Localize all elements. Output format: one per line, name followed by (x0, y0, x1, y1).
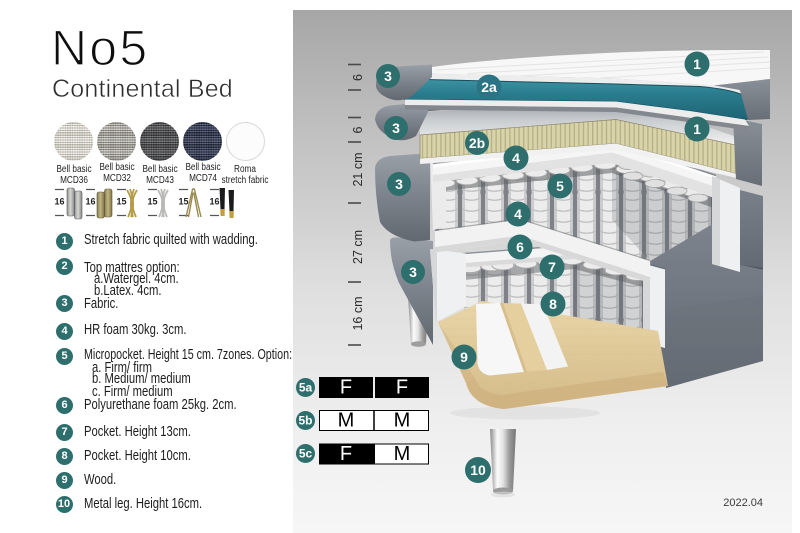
svg-text:5a: 5a (299, 381, 313, 395)
svg-text:16: 16 (54, 197, 64, 207)
svg-text:F: F (396, 377, 408, 399)
svg-text:2022.04: 2022.04 (723, 497, 763, 509)
svg-text:15: 15 (147, 197, 157, 207)
svg-text:3: 3 (409, 264, 417, 280)
svg-text:5b: 5b (298, 414, 312, 428)
svg-text:3: 3 (384, 68, 392, 84)
svg-text:2b: 2b (469, 135, 485, 151)
svg-text:6: 6 (351, 74, 365, 81)
svg-text:6: 6 (351, 126, 365, 133)
svg-text:M: M (394, 443, 411, 465)
svg-text:M: M (338, 410, 355, 432)
svg-text:10: 10 (470, 462, 486, 478)
svg-text:16: 16 (85, 197, 95, 207)
svg-text:21 cm: 21 cm (351, 152, 365, 186)
svg-text:F: F (340, 443, 352, 465)
svg-text:16 cm: 16 cm (351, 296, 365, 330)
svg-text:2a: 2a (481, 79, 497, 95)
svg-text:4: 4 (512, 150, 520, 166)
svg-text:5: 5 (556, 178, 564, 194)
svg-text:27 cm: 27 cm (351, 230, 365, 264)
svg-text:16: 16 (209, 197, 219, 207)
svg-text:8: 8 (549, 296, 557, 312)
svg-text:15: 15 (178, 197, 188, 207)
svg-text:9: 9 (460, 349, 468, 365)
svg-text:7: 7 (548, 259, 556, 275)
svg-text:1: 1 (693, 121, 701, 137)
svg-text:3: 3 (392, 120, 400, 136)
svg-text:1: 1 (693, 56, 701, 72)
svg-text:6: 6 (516, 239, 524, 255)
svg-text:3: 3 (395, 176, 403, 192)
svg-text:15: 15 (116, 197, 126, 207)
svg-text:4: 4 (514, 206, 522, 222)
svg-text:5c: 5c (299, 447, 313, 461)
svg-text:M: M (394, 410, 411, 432)
svg-text:F: F (340, 377, 352, 399)
